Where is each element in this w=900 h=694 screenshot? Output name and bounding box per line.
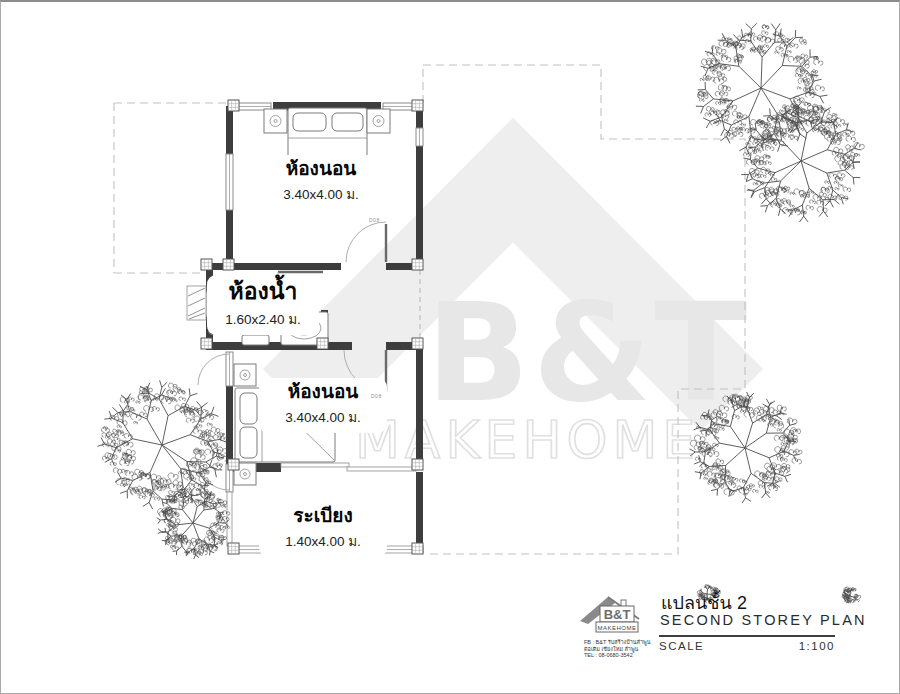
scale-label: SCALE [659,640,704,652]
sheet-title-english: SECOND STOREY PLAN [660,612,867,628]
scale-row: SCALE 1:100 [659,640,835,652]
logo-brand-text: B&T [604,607,631,622]
title-rule [659,635,835,637]
scale-value: 1:100 [799,640,835,652]
title-block: B&T MAKEHOME FB : B&T รับสร้างบ้านลำพูน … [1,2,899,693]
logo-word-text: MAKEHOME [597,625,636,631]
sheet: B&T MAKEHOME [0,0,900,694]
logo-contact: FB : B&T รับสร้างบ้านลำพูน ต่อเติม เชียง… [584,639,644,659]
bt-makehome-logo-icon: B&T MAKEHOME [579,591,645,637]
